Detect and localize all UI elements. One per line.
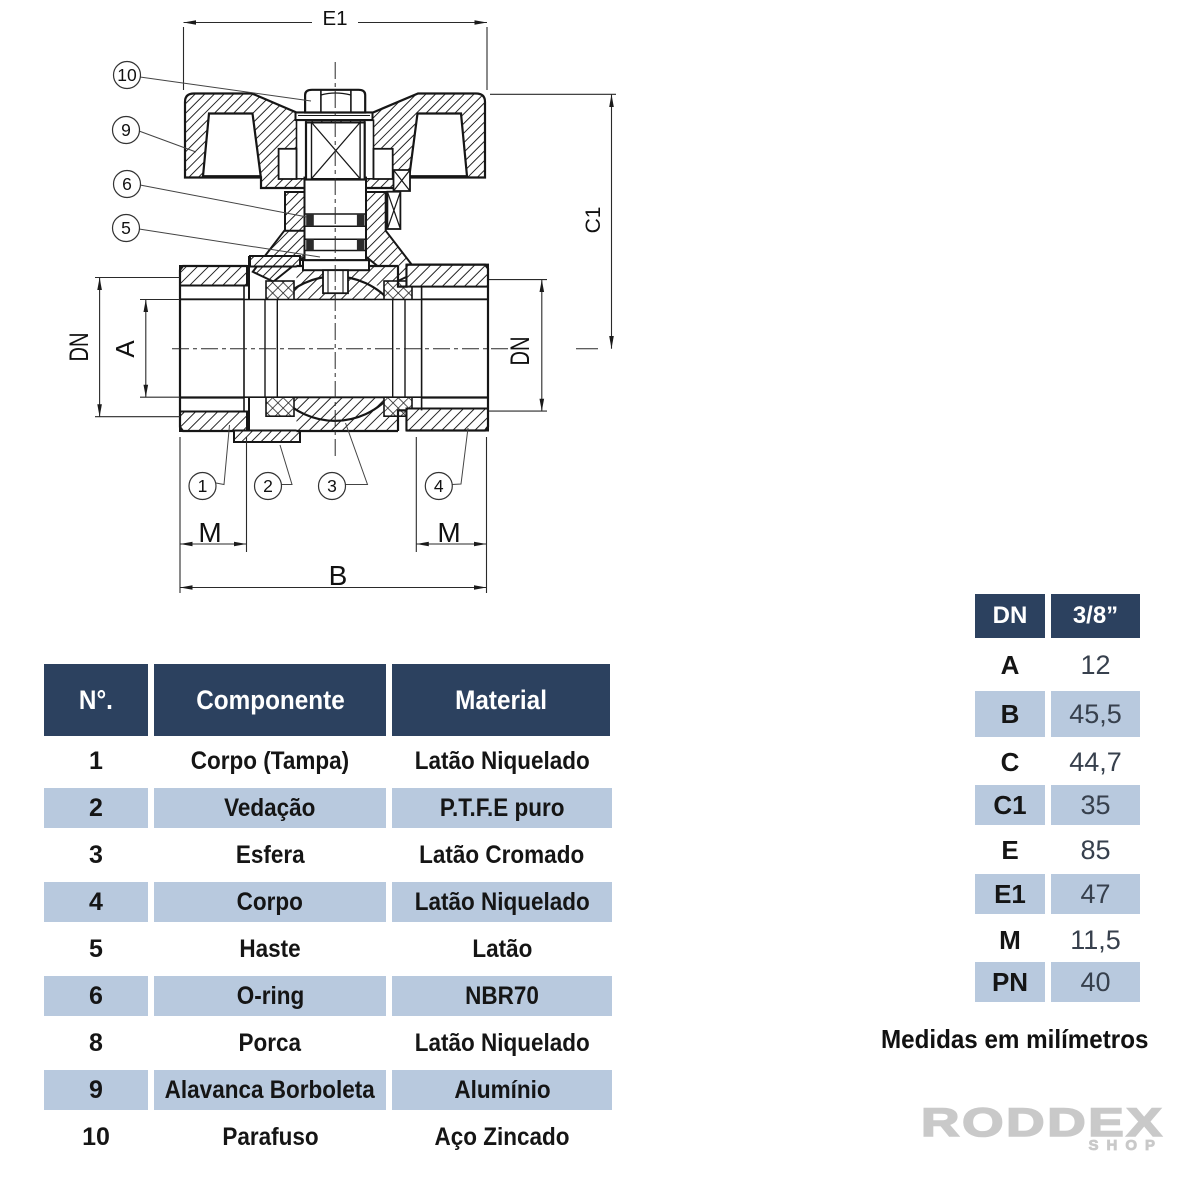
- svg-text:1: 1: [198, 476, 208, 496]
- svg-text:E1: E1: [322, 7, 347, 30]
- svg-text:9: 9: [121, 120, 131, 140]
- svg-text:DN: DN: [64, 333, 94, 362]
- svg-text:10: 10: [117, 65, 137, 85]
- svg-text:2: 2: [263, 476, 273, 496]
- svg-text:6: 6: [122, 174, 132, 194]
- svg-text:C1: C1: [582, 207, 605, 234]
- svg-text:3: 3: [327, 476, 337, 496]
- svg-text:5: 5: [121, 218, 131, 238]
- svg-text:4: 4: [434, 476, 444, 496]
- svg-text:B: B: [329, 560, 348, 591]
- svg-text:M: M: [437, 517, 460, 548]
- svg-text:A: A: [110, 340, 140, 358]
- svg-text:DN: DN: [505, 337, 535, 366]
- svg-text:M: M: [198, 517, 221, 548]
